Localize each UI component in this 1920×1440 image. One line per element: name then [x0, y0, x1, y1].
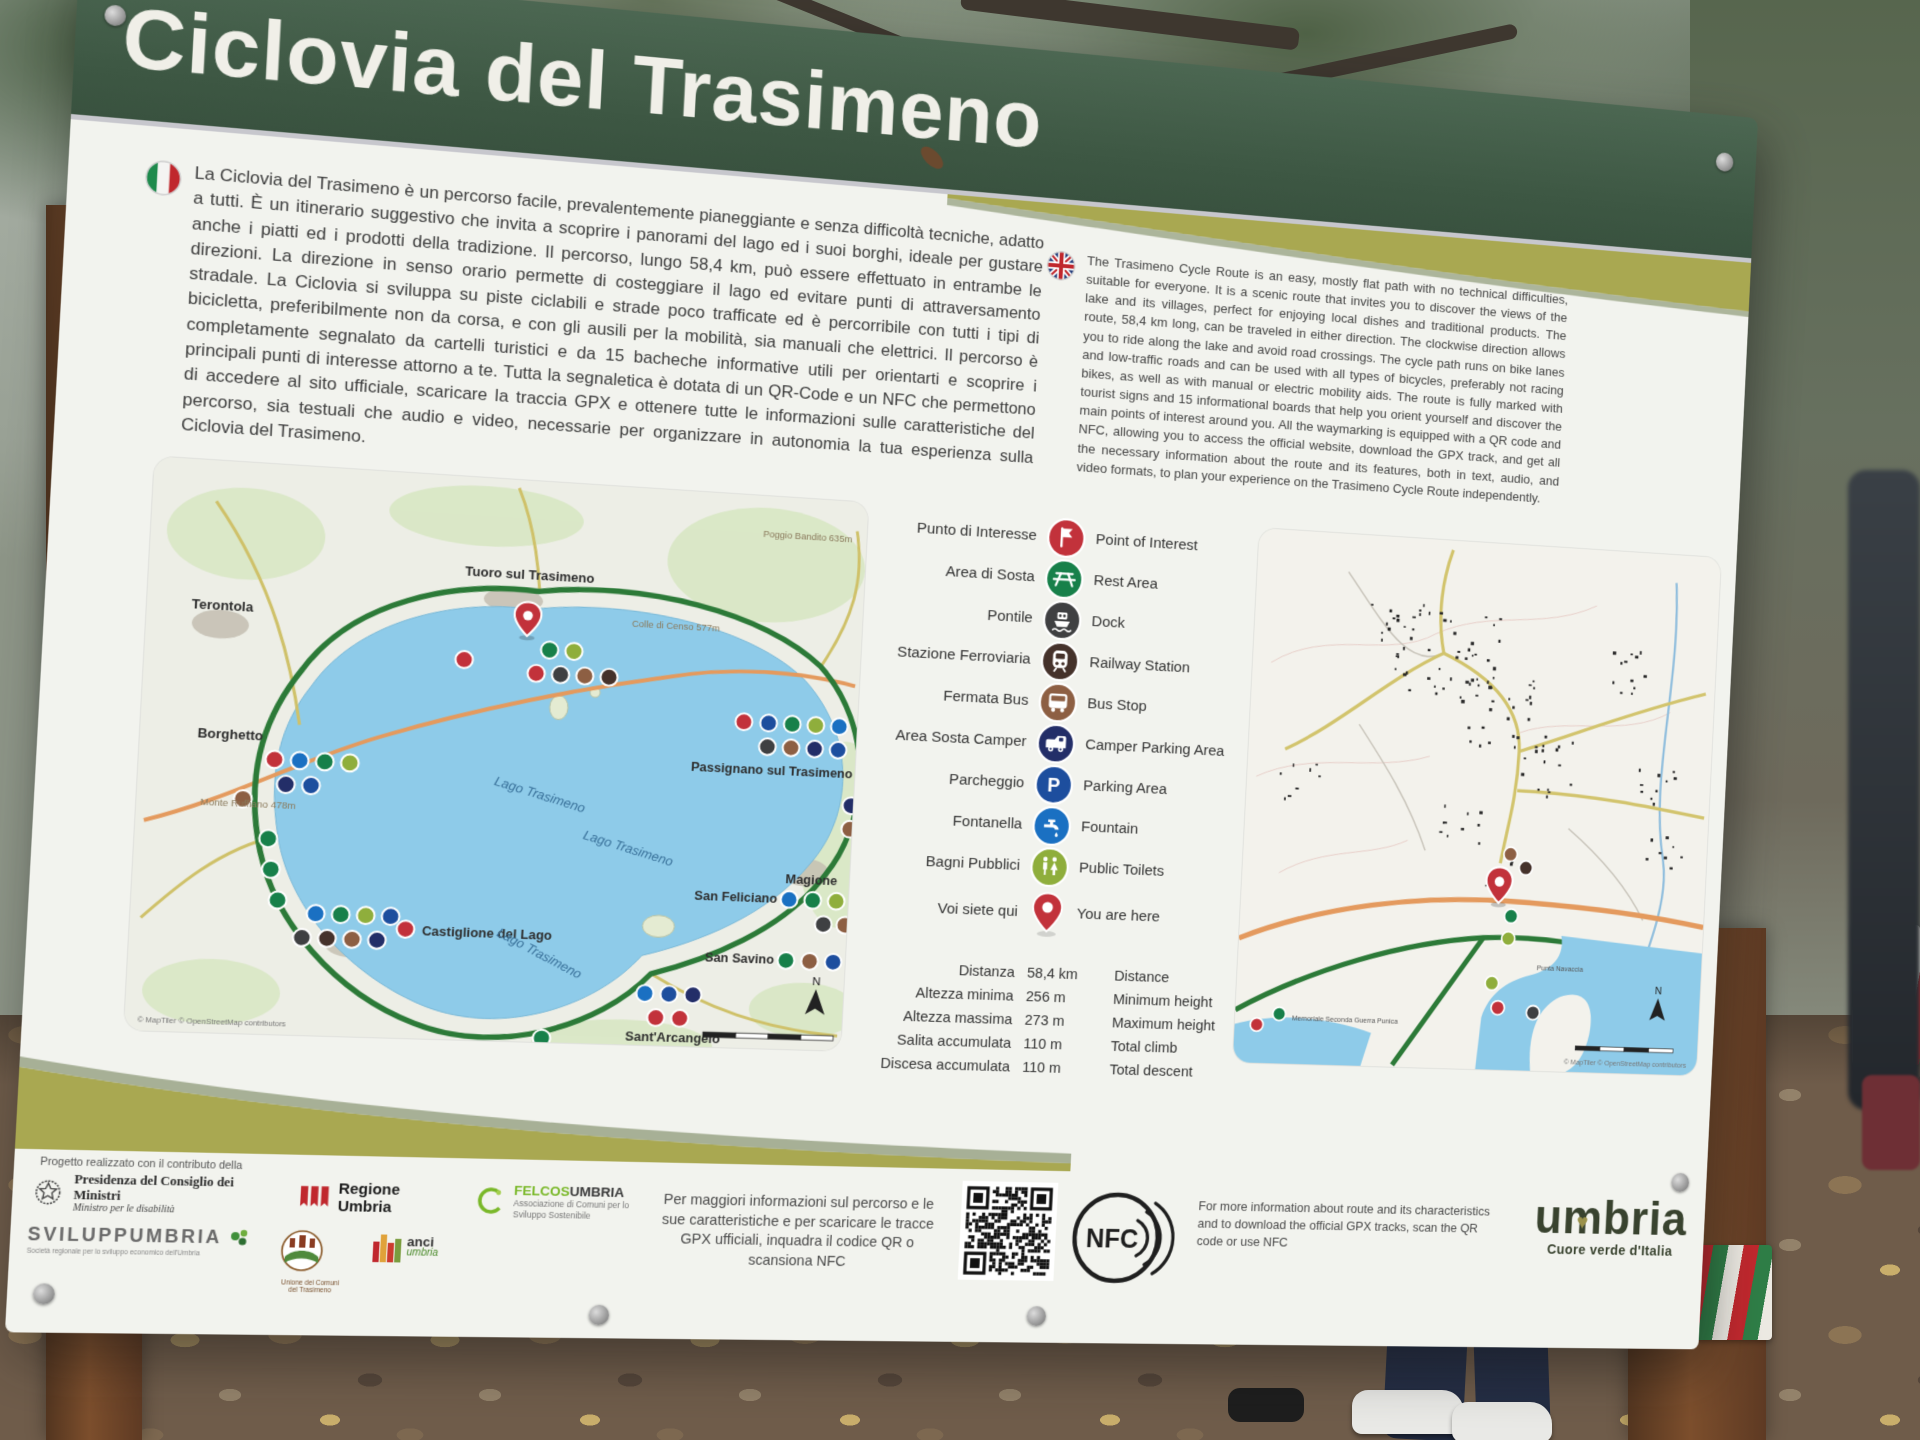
partner-logos: Progetto realizzato con il contributo de…: [22, 1153, 646, 1335]
legend-label-en: You are here: [1076, 906, 1218, 929]
point-of-interest-icon: [1044, 516, 1088, 560]
uk-flag-icon: [1046, 250, 1076, 282]
svg-text:N: N: [812, 975, 821, 989]
stat-label-en: Maximum height: [1106, 1012, 1216, 1039]
you-are-here-pin-icon: [1025, 888, 1069, 939]
legend-label-en: Point of Interest: [1095, 531, 1236, 557]
legend-label-it: Stazione Ferroviaria: [878, 643, 1031, 669]
shore-label: Punta Navaccia: [1537, 963, 1584, 973]
stat-value: 273 m: [1012, 1009, 1107, 1035]
stat-value: 110 m: [1009, 1056, 1104, 1082]
felcos-ring-icon: [475, 1185, 507, 1216]
fountain-icon: [1030, 805, 1074, 848]
anci-umbria-logo: anci umbria: [372, 1229, 439, 1263]
rest-area-icon: [1042, 558, 1086, 602]
partners-row-2: SVILUPPUMBRIA Società regionale per lo s…: [25, 1223, 644, 1299]
public-toilets-icon: [1028, 846, 1072, 889]
sign-main-panel: La Ciclovia del Trasimeno è un percorso …: [15, 119, 1751, 1185]
legend-label-it: Parcheggio: [872, 768, 1025, 793]
italy-flag-icon: [144, 159, 182, 197]
bag-silhouette: [1862, 1075, 1920, 1170]
stat-value: 58,4 km: [1014, 962, 1109, 989]
anci-label: anci: [407, 1234, 439, 1248]
maps-and-legend: Terontola Tuoro sul Trasimeno Passignano…: [123, 457, 1727, 1099]
legend-label-en: Bus Stop: [1087, 696, 1229, 721]
legend-label-it: Voi siete qui: [865, 898, 1018, 922]
detail-map-tuoro: Punta Navaccia Memoriale Seconda Guerra …: [1233, 528, 1721, 1076]
dock-icon: [1040, 599, 1084, 643]
legend-label-en: Rest Area: [1093, 572, 1234, 598]
legend-label-it: Area di Sosta: [882, 560, 1035, 587]
stat-label-en: Distance: [1108, 965, 1170, 990]
photo-scene: Ciclovia del Trasimeno La Ciclovia del T…: [0, 0, 1920, 1440]
intro-english: The Trasimeno Cycle Route is an easy, mo…: [1075, 251, 1568, 528]
stat-label-en: Minimum height: [1107, 988, 1213, 1015]
qr-nfc-info: Per maggiori informazioni sul percorso e…: [647, 1174, 1695, 1295]
legend-label-en: Railway Station: [1089, 654, 1230, 679]
intro-text-it: La Ciclovia del Trasimeno è un percorso …: [181, 163, 1045, 467]
regione-umbria-label: Regione Umbria: [337, 1180, 456, 1217]
partners-row-1: Presidenza del Consiglio dei Ministri Mi…: [29, 1171, 646, 1224]
presidenza-logo: Presidenza del Consiglio dei Ministri Mi…: [29, 1171, 280, 1217]
legend-label-it: Fermata Bus: [876, 684, 1029, 710]
legend-label-it: Bagni Pubblici: [867, 851, 1020, 875]
stat-label-en: Total descent: [1103, 1059, 1193, 1085]
sviluppumbria-leaf-icon: [228, 1227, 252, 1248]
unione-comuni-logo: Unione dei Comuni del Trasimeno: [276, 1228, 347, 1296]
legend-label-en: Fountain: [1081, 819, 1223, 843]
bystander-silhouette: [1848, 470, 1920, 1110]
bus-stop-icon: [1036, 681, 1080, 724]
white-sneaker: [1452, 1402, 1552, 1440]
railway-station-icon: [1038, 640, 1082, 683]
presidenza-line1: Presidenza del Consiglio dei Ministri: [73, 1172, 280, 1207]
legend-label-it: Pontile: [880, 601, 1033, 628]
town-label: San Savino: [704, 950, 774, 967]
info-text-italian: Per maggiori informazioni sul percorso e…: [648, 1191, 947, 1274]
legend-label-en: Parking Area: [1083, 778, 1225, 802]
regione-umbria-logo: Regione Umbria: [299, 1180, 456, 1218]
anci-sublabel: umbria: [406, 1248, 438, 1259]
unione-comuni-icon: [277, 1228, 326, 1274]
sviluppumbria-subtitle: Società regionale per lo sviluppo econom…: [27, 1248, 251, 1259]
town-label: Sant'Arcangelo: [625, 1029, 720, 1047]
umbria-tagline: Cuore verde d'Italia: [1533, 1242, 1686, 1260]
intro-italian: La Ciclovia del Trasimeno è un percorso …: [180, 161, 1044, 494]
regione-banners-icon: [299, 1184, 331, 1211]
nfc-logo: NFC: [1068, 1187, 1184, 1289]
umbria-logo: um♥bria Cuore verde d'Italia: [1533, 1193, 1688, 1260]
legend-label-it: Area Sosta Camper: [874, 726, 1027, 751]
lake-overview-map: Terontola Tuoro sul Trasimeno Passignano…: [124, 457, 869, 1051]
qr-code: [958, 1181, 1059, 1281]
stat-label-en: Total climb: [1104, 1035, 1177, 1061]
camper-parking-icon: [1034, 722, 1078, 765]
stat-label-it: Discesa accumulata: [857, 1052, 1011, 1080]
town-label: Borghetto: [197, 726, 263, 744]
legend-label-it: Fontanella: [869, 809, 1022, 834]
white-sneaker: [1352, 1390, 1464, 1434]
sign-bottom-strip: Progetto realizzato con il contributo de…: [5, 1149, 1706, 1350]
legend-label-it: Punto di Interesse: [884, 518, 1037, 545]
parking-icon: P: [1032, 764, 1076, 807]
felcos-name: FELCOS: [514, 1183, 570, 1199]
intro-text-en: The Trasimeno Cycle Route is an easy, mo…: [1076, 253, 1568, 505]
legend-label-en: Public Toilets: [1079, 860, 1221, 883]
legend: Punto di Interesse Point of Interest Are…: [857, 506, 1245, 1085]
felcos-subtitle: Associazione di Comuni per lo Sviluppo S…: [513, 1198, 646, 1221]
anci-towers-icon: [372, 1229, 403, 1262]
town-label: Magione: [785, 872, 837, 889]
nfc-label: NFC: [1085, 1223, 1139, 1254]
svg-text:N: N: [1655, 986, 1662, 997]
heart-icon: ♥: [1576, 1212, 1589, 1233]
felcos-logo: FELCOSUMBRIA Associazione di Comuni per …: [475, 1182, 646, 1221]
dark-shoe: [1228, 1388, 1304, 1422]
unione-comuni-label: Unione dei Comuni del Trasimeno: [276, 1279, 344, 1295]
sviluppumbria-label: SVILUPPUMBRIA: [27, 1223, 223, 1248]
italy-emblem-icon: [29, 1172, 67, 1212]
legend-label-en: Dock: [1091, 613, 1232, 639]
route-stats: Distanza 58,4 km Distance Altezza minima…: [857, 956, 1223, 1085]
svg-text:P: P: [1047, 775, 1061, 797]
stat-value: 110 m: [1010, 1032, 1105, 1058]
sviluppumbria-logo: SVILUPPUMBRIA Società regionale per lo s…: [27, 1223, 253, 1258]
felcos-name2: UMBRIA: [569, 1184, 624, 1200]
information-sign-board: Ciclovia del Trasimeno La Ciclovia del T…: [5, 0, 1758, 1345]
info-text-english: For more information about route and its…: [1196, 1197, 1502, 1255]
legend-label-en: Camper Parking Area: [1085, 737, 1227, 762]
stat-value: 256 m: [1013, 985, 1108, 1012]
umbria-wordmark: um♥bria: [1534, 1193, 1689, 1243]
